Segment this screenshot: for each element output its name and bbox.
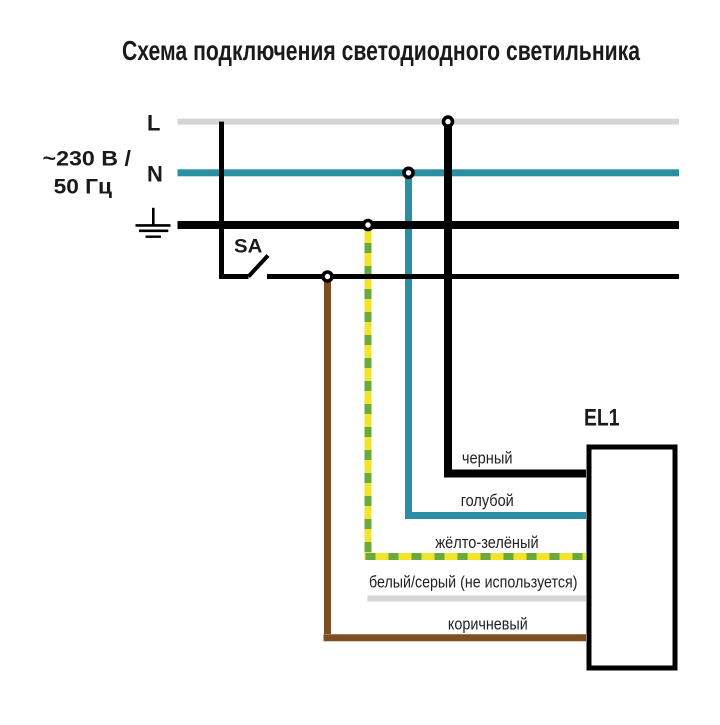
svg-text:50 Гц: 50 Гц: [54, 175, 112, 198]
svg-text:N: N: [147, 161, 163, 186]
svg-text:L: L: [147, 111, 160, 136]
svg-text:SA: SA: [234, 236, 263, 257]
svg-text:EL1: EL1: [584, 405, 620, 432]
svg-text:жёлто-зелёный: жёлто-зелёный: [435, 533, 538, 552]
svg-text:белый/серый (не используется): белый/серый (не используется): [369, 573, 577, 592]
svg-text:коричневый: коричневый: [448, 615, 528, 634]
svg-text:~230 В /: ~230 В /: [43, 148, 132, 171]
svg-text:черный: черный: [462, 449, 513, 468]
svg-text:Схема подключения светодиодног: Схема подключения светодиодного светильн…: [122, 35, 640, 66]
svg-text:голубой: голубой: [461, 491, 514, 510]
